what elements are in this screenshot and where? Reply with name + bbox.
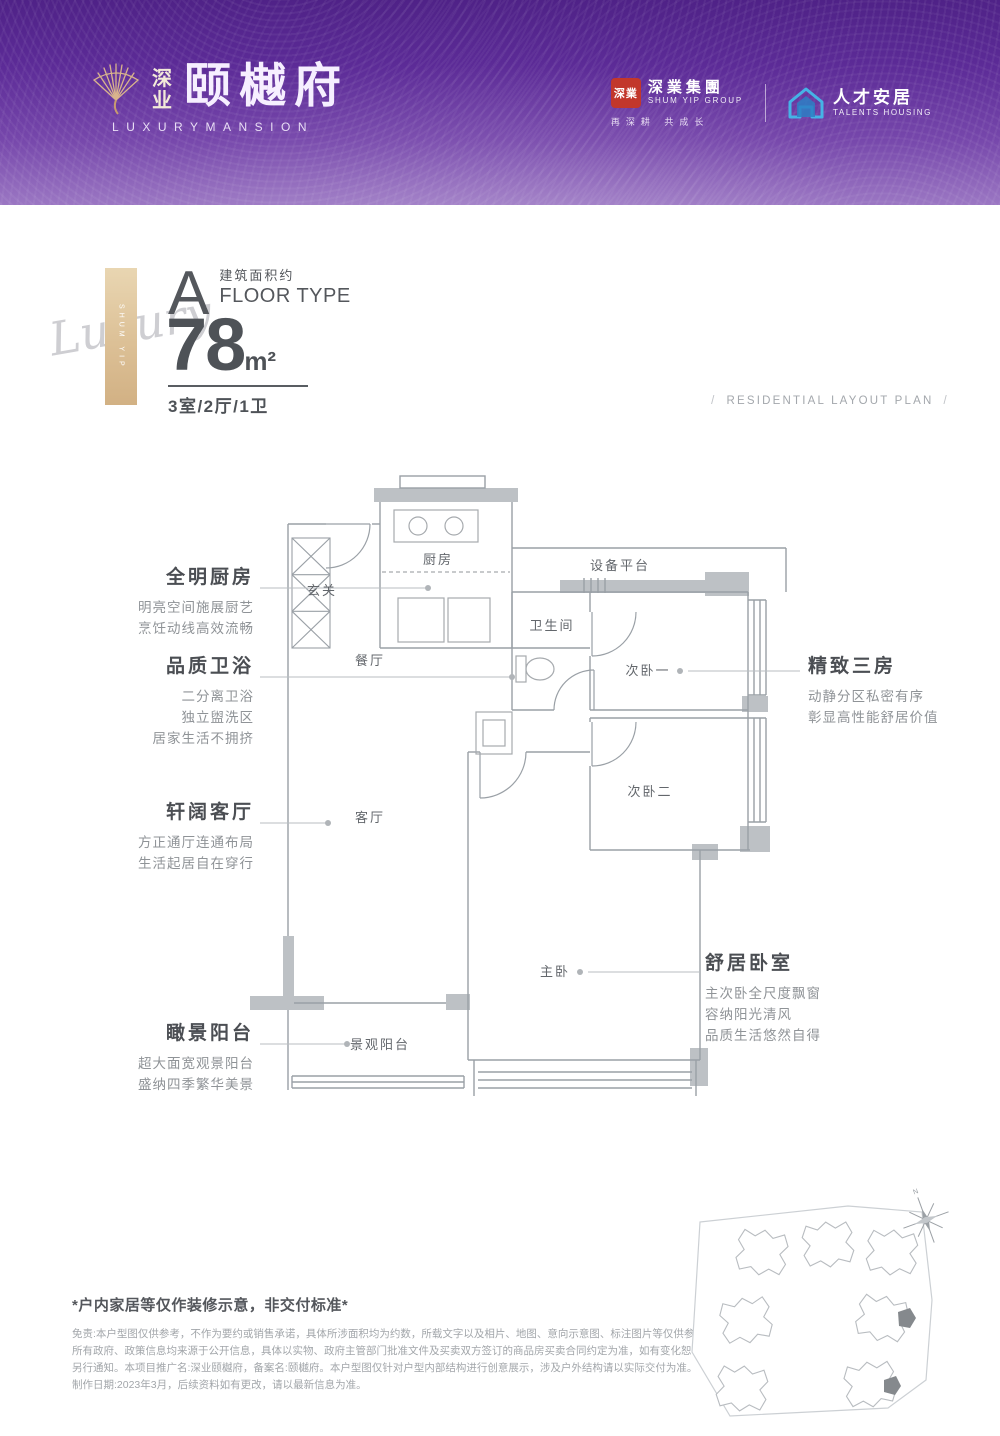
room-label-living: 客厅 (355, 810, 385, 825)
divider-rule (168, 385, 308, 387)
washbasin-outer (476, 712, 512, 754)
compass-north-label: N (912, 1188, 919, 1196)
disclaimer: *户内家居等仅作装修示意，非交付标准* 免责:本户型图仅供参考，不作为要约或销售… (72, 1294, 692, 1394)
annotation-living: 轩阔客厅 方正通厅连通布局 生活起居自在穿行 (34, 801, 254, 874)
header-banner: 深业 颐樾府 LUXURYMANSION 深業 深業集團 SHUM YIP GR… (0, 0, 1000, 205)
room-label-master: 主卧 (540, 964, 570, 979)
stove-counter (394, 510, 478, 542)
annotation-line: 盛纳四季繁华美景 (34, 1074, 254, 1095)
gold-ribbon: SHUM YIP (105, 268, 137, 405)
area-label-cn: 建筑面积约 (219, 268, 350, 284)
shumyip-logo: 深業 深業集團 SHUM YIP GROUP 再深耕 共成长 (611, 78, 743, 128)
blue-house-icon (788, 87, 824, 119)
annotation-line: 主次卧全尺度飘窗 (705, 983, 821, 1004)
disclaimer-line: 另行通知。本项目推广名:深业颐樾府，备案名:颐樾府。本户型图仅针对户型内部结构进… (72, 1360, 692, 1377)
slash-right: / (943, 395, 948, 407)
room-label-bedroom1: 次卧一 (625, 663, 670, 678)
burner-icon (409, 517, 427, 535)
annotation-line: 彰显高性能舒居价值 (808, 707, 939, 728)
room-label-entry: 玄关 (307, 583, 337, 598)
annotation-title: 全明厨房 (34, 566, 254, 590)
annotation-title: 品质卫浴 (34, 655, 254, 679)
annotation-line: 二分离卫浴 (34, 686, 254, 707)
partner-logos: 深業 深業集團 SHUM YIP GROUP 再深耕 共成长 人才安居 TALE… (611, 78, 932, 128)
shumyip-slogan: 再深耕 共成长 (611, 115, 743, 128)
logo-divider (765, 84, 766, 122)
cabinet (398, 598, 444, 642)
shumyip-seal-icon: 深業 (611, 78, 641, 108)
annotation-title: 瞰景阳台 (34, 1022, 254, 1046)
annotation-line: 明亮空间施展厨艺 (34, 597, 254, 618)
plan-caption-text: RESIDENTIAL LAYOUT PLAN (727, 395, 934, 407)
annotation-kitchen: 全明厨房 明亮空间施展厨艺 烹饪动线高效流畅 (34, 566, 254, 639)
area-number: 78 (166, 303, 244, 386)
talents-name-cn: 人才安居 (833, 88, 932, 107)
room-label-dining: 餐厅 (355, 653, 385, 668)
annotation-line: 超大面宽观景阳台 (34, 1053, 254, 1074)
fridge (448, 598, 490, 642)
annotation-line: 独立盥洗区 (34, 707, 254, 728)
brand-lockup: 深业 颐樾府 (88, 58, 349, 118)
disclaimer-line: 所有政府、政策信息均来源于公开信息，具体以实物、政府主管部门批准文件及买卖双方签… (72, 1343, 692, 1360)
slash-left: / (711, 395, 716, 407)
annotation-line: 方正通厅连通布局 (34, 832, 254, 853)
plan-caption: /RESIDENTIAL LAYOUT PLAN/ (690, 395, 970, 407)
annotation-line: 动静分区私密有序 (808, 686, 939, 707)
fixtures (382, 510, 554, 754)
annotation-line: 烹饪动线高效流畅 (34, 618, 254, 639)
annotation-line: 居家生活不拥挤 (34, 728, 254, 749)
burner-icon (445, 517, 463, 535)
site-plan-map: N (670, 1180, 970, 1420)
annotation-bath: 品质卫浴 二分离卫浴 独立盥洗区 居家生活不拥挤 (34, 655, 254, 749)
annotation-balcony: 瞰景阳台 超大面宽观景阳台 盛纳四季繁华美景 (34, 1022, 254, 1095)
shumyip-name-cn: 深業集團 (648, 80, 743, 96)
gold-ribbon-text: SHUM YIP (118, 304, 125, 370)
shumyip-name-en: SHUM YIP GROUP (648, 96, 743, 106)
toilet-icon (526, 658, 554, 680)
annotation-title: 轩阔客厅 (34, 801, 254, 825)
talents-housing-logo: 人才安居 TALENTS HOUSING (788, 87, 932, 119)
disclaimer-title: *户内家居等仅作装修示意，非交付标准* (72, 1294, 692, 1315)
annotation-line: 品质生活悠然自得 (705, 1025, 821, 1046)
annotation-line: 生活起居自在穿行 (34, 853, 254, 874)
room-label-platform: 设备平台 (590, 558, 650, 573)
washbasin-inner (483, 720, 505, 746)
layout-summary: 3室/2厅/1卫 (168, 392, 269, 417)
poster-page: 深业 颐樾府 LUXURYMANSION 深業 深業集團 SHUM YIP GR… (0, 0, 1000, 1436)
talents-name-en: TALENTS HOUSING (833, 107, 932, 118)
annotation-title: 精致三房 (808, 655, 939, 679)
toilet-tank (516, 656, 526, 682)
room-label-kitchen: 厨房 (423, 552, 453, 567)
room-label-bath: 卫生间 (529, 618, 574, 633)
area-unit: m² (244, 346, 276, 376)
room-label-bedroom2: 次卧二 (627, 784, 672, 799)
annotation-line: 容纳阳光清风 (705, 1004, 821, 1025)
annotation-title: 舒居卧室 (705, 952, 821, 976)
disclaimer-line: 制作日期:2023年3月，后续资料如有更改，请以最新信息为准。 (72, 1377, 692, 1394)
gold-fan-icon (88, 62, 144, 118)
area-value: 78m² (166, 308, 276, 382)
brand-cn-large: 颐樾府 (184, 58, 349, 114)
brand-cn-small: 深业 (152, 68, 178, 112)
annotation-three-rooms: 精致三房 动静分区私密有序 彰显高性能舒居价值 (808, 655, 939, 728)
room-label-balcony: 景观阳台 (350, 1037, 410, 1052)
disclaimer-line: 免责:本户型图仅供参考，不作为要约或销售承诺，具体所涉面积均为约数，所载文字以及… (72, 1326, 692, 1343)
annotation-bedrooms: 舒居卧室 主次卧全尺度飘窗 容纳阳光清风 品质生活悠然自得 (705, 952, 821, 1046)
brand-en: LUXURYMANSION (88, 120, 338, 134)
